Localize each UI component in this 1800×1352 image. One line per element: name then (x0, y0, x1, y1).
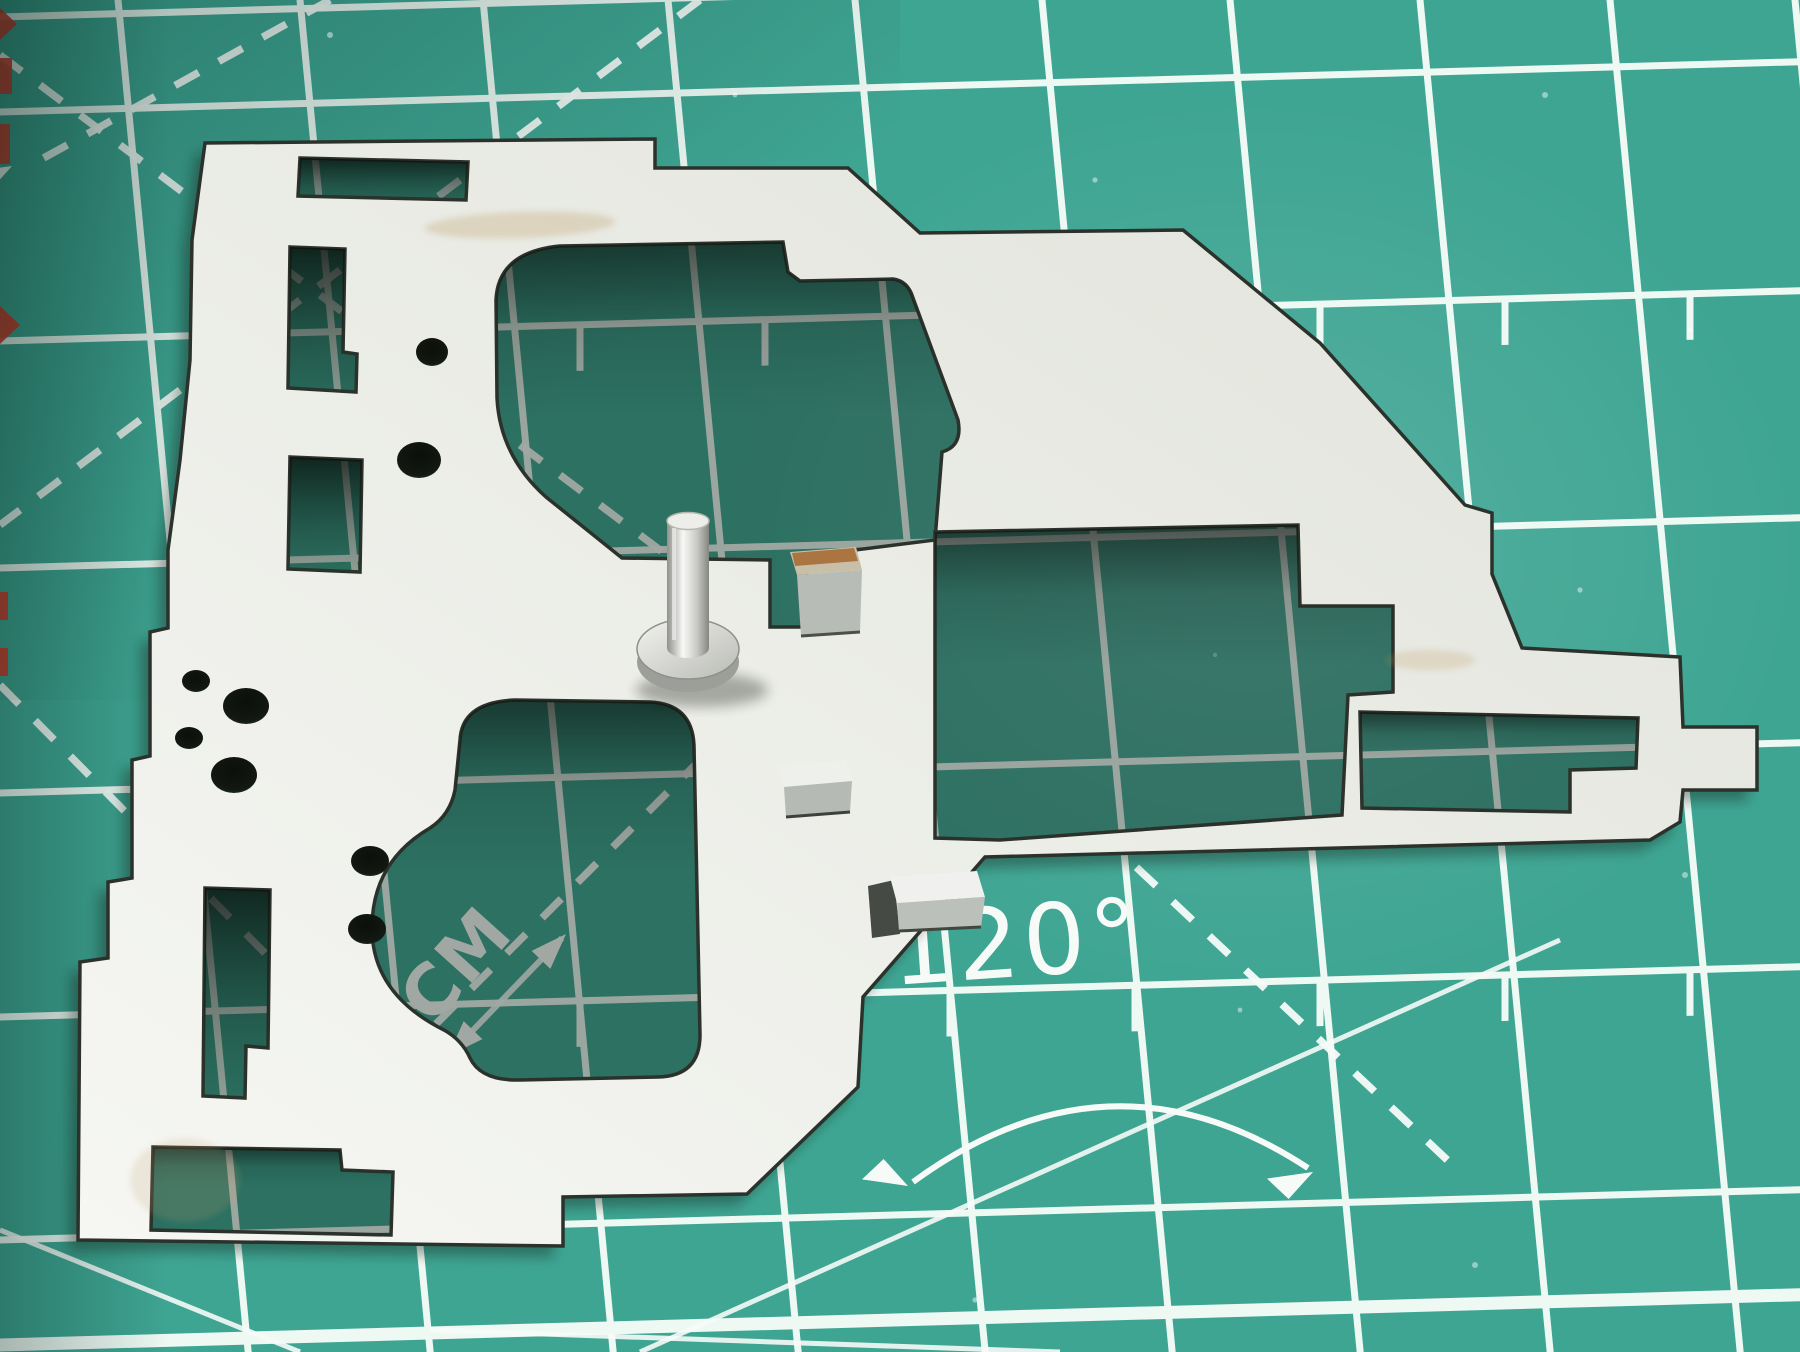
photo-stage: 120° 1CM (0, 0, 1800, 1352)
bent-tab-middle (778, 760, 852, 817)
photo-canvas: 120° 1CM (0, 0, 1800, 1352)
bent-tab-rusty (790, 547, 862, 636)
pin-top-cap (667, 513, 709, 530)
